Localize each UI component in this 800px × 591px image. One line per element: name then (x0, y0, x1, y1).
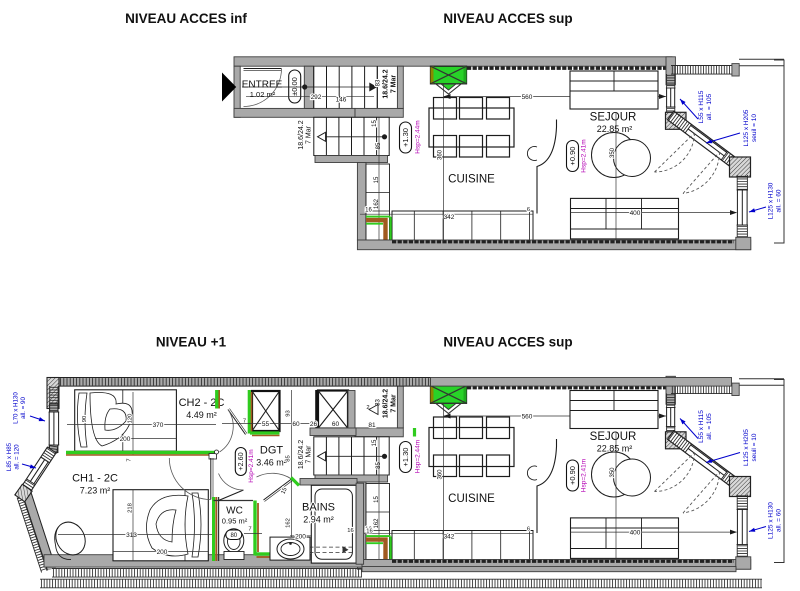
svg-text:WC: WC (226, 506, 243, 517)
svg-text:313: 313 (126, 532, 137, 539)
svg-text:16: 16 (366, 529, 372, 535)
svg-text:CUISINE: CUISINE (448, 493, 495, 505)
svg-text:60: 60 (332, 421, 340, 428)
svg-text:+0.90: +0.90 (568, 466, 577, 485)
svg-text:7: 7 (248, 527, 251, 533)
svg-text:218: 218 (128, 503, 134, 513)
svg-text:L125 x H205: L125 x H205 (743, 429, 750, 466)
svg-text:200: 200 (120, 436, 131, 443)
svg-text:162: 162 (286, 518, 292, 528)
svg-text:+1.30: +1.30 (401, 448, 410, 467)
svg-text:L55 x H115: L55 x H115 (698, 410, 705, 443)
svg-text:all. = 105: all. = 105 (706, 413, 713, 440)
svg-text:BAINS: BAINS (302, 502, 335, 514)
svg-text:all. = 120: all. = 120 (14, 444, 21, 470)
svg-text:7: 7 (127, 458, 133, 461)
svg-text:all. = 60: all. = 60 (776, 509, 783, 532)
svg-text:350: 350 (610, 147, 616, 158)
svg-text:L125 x H130: L125 x H130 (768, 502, 775, 539)
svg-text:18.6/24.2: 18.6/24.2 (298, 440, 305, 469)
svg-text:360: 360 (438, 149, 444, 160)
svg-text:3.46 m²: 3.46 m² (256, 458, 287, 468)
svg-text:L125 x H130: L125 x H130 (768, 182, 775, 219)
svg-text:200: 200 (295, 534, 306, 541)
svg-text:360: 360 (438, 469, 444, 480)
svg-text:Hsp=2.41m: Hsp=2.41m (581, 139, 588, 172)
svg-text:all. = 105: all. = 105 (706, 93, 713, 120)
svg-text:83: 83 (375, 79, 381, 86)
svg-text:342: 342 (444, 214, 455, 221)
svg-text:85: 85 (286, 455, 292, 461)
svg-text:16: 16 (365, 208, 372, 214)
svg-text:+0.90: +0.90 (568, 147, 577, 166)
svg-text:6: 6 (527, 527, 530, 533)
svg-text:342: 342 (444, 534, 455, 541)
svg-text:18.6/24.2: 18.6/24.2 (383, 389, 390, 418)
svg-text:Hsp=2.41m: Hsp=2.41m (581, 459, 588, 492)
svg-text:2: 2 (366, 405, 369, 411)
svg-text:560: 560 (522, 414, 533, 421)
svg-text:L70 x H130: L70 x H130 (13, 392, 20, 424)
svg-text:400: 400 (630, 530, 641, 537)
svg-text:146: 146 (336, 97, 347, 104)
svg-text:CUISINE: CUISINE (448, 174, 495, 186)
svg-text:1.02 m²: 1.02 m² (250, 90, 276, 99)
svg-text:+2.60: +2.60 (236, 452, 245, 470)
svg-text:26: 26 (310, 421, 318, 428)
svg-text:+1.30: +1.30 (401, 128, 410, 147)
svg-text:Hsp=2.44m: Hsp=2.44m (415, 120, 422, 153)
svg-text:6: 6 (527, 207, 530, 213)
svg-text:120: 120 (128, 414, 134, 424)
svg-text:90: 90 (82, 416, 88, 422)
svg-text:CH1 - 2C: CH1 - 2C (72, 473, 118, 485)
svg-text:80: 80 (230, 533, 237, 539)
svg-text:292: 292 (311, 94, 322, 101)
svg-text:0.95 m²: 0.95 m² (222, 517, 248, 526)
svg-text:7 Mar: 7 Mar (391, 75, 398, 94)
svg-text:L55 x H115: L55 x H115 (698, 90, 705, 123)
svg-text:200: 200 (157, 549, 168, 556)
svg-text:SEJOUR: SEJOUR (590, 431, 637, 443)
svg-text:NIVEAU +1: NIVEAU +1 (156, 335, 227, 350)
svg-text:NIVEAU ACCES sup: NIVEAU ACCES sup (443, 335, 572, 350)
svg-text:±0.00: ±0.00 (290, 77, 299, 96)
svg-text:Hsp=2.41m: Hsp=2.41m (248, 449, 255, 482)
svg-text:18.6/24.2: 18.6/24.2 (383, 69, 390, 98)
svg-text:16: 16 (347, 528, 353, 534)
svg-text:15: 15 (372, 439, 378, 446)
svg-text:7.23 m²: 7.23 m² (80, 486, 111, 496)
svg-text:all. = 60: all. = 60 (776, 189, 783, 212)
svg-text:seuil = 10: seuil = 10 (751, 433, 758, 461)
svg-text:SEJOUR: SEJOUR (590, 112, 637, 124)
svg-text:Hsp=2.44m: Hsp=2.44m (415, 440, 422, 473)
svg-text:400: 400 (630, 210, 641, 217)
svg-text:7 Mar: 7 Mar (306, 125, 313, 144)
svg-text:L125 x H205: L125 x H205 (743, 109, 750, 146)
svg-text:370: 370 (153, 422, 164, 429)
svg-text:15: 15 (372, 120, 378, 127)
svg-text:L85 x H85: L85 x H85 (6, 442, 13, 471)
svg-text:DGT: DGT (260, 445, 284, 457)
svg-text:7 Mar: 7 Mar (391, 394, 398, 413)
svg-text:560: 560 (522, 94, 533, 101)
svg-text:55: 55 (262, 421, 270, 428)
svg-text:4.49 m²: 4.49 m² (186, 410, 217, 420)
svg-text:NIVEAU ACCES sup: NIVEAU ACCES sup (443, 11, 572, 26)
svg-text:seuil = 10: seuil = 10 (751, 114, 758, 142)
svg-text:all. = 90: all. = 90 (20, 397, 27, 419)
svg-text:81: 81 (368, 422, 376, 429)
svg-text:18.6/24.2: 18.6/24.2 (298, 120, 305, 149)
svg-text:93: 93 (286, 410, 292, 416)
svg-text:7 Mar: 7 Mar (306, 445, 313, 464)
svg-text:60: 60 (292, 421, 300, 428)
svg-text:2.94 m²: 2.94 m² (303, 515, 334, 525)
svg-text:350: 350 (610, 467, 616, 478)
svg-text:NIVEAU ACCES inf: NIVEAU ACCES inf (125, 11, 247, 26)
